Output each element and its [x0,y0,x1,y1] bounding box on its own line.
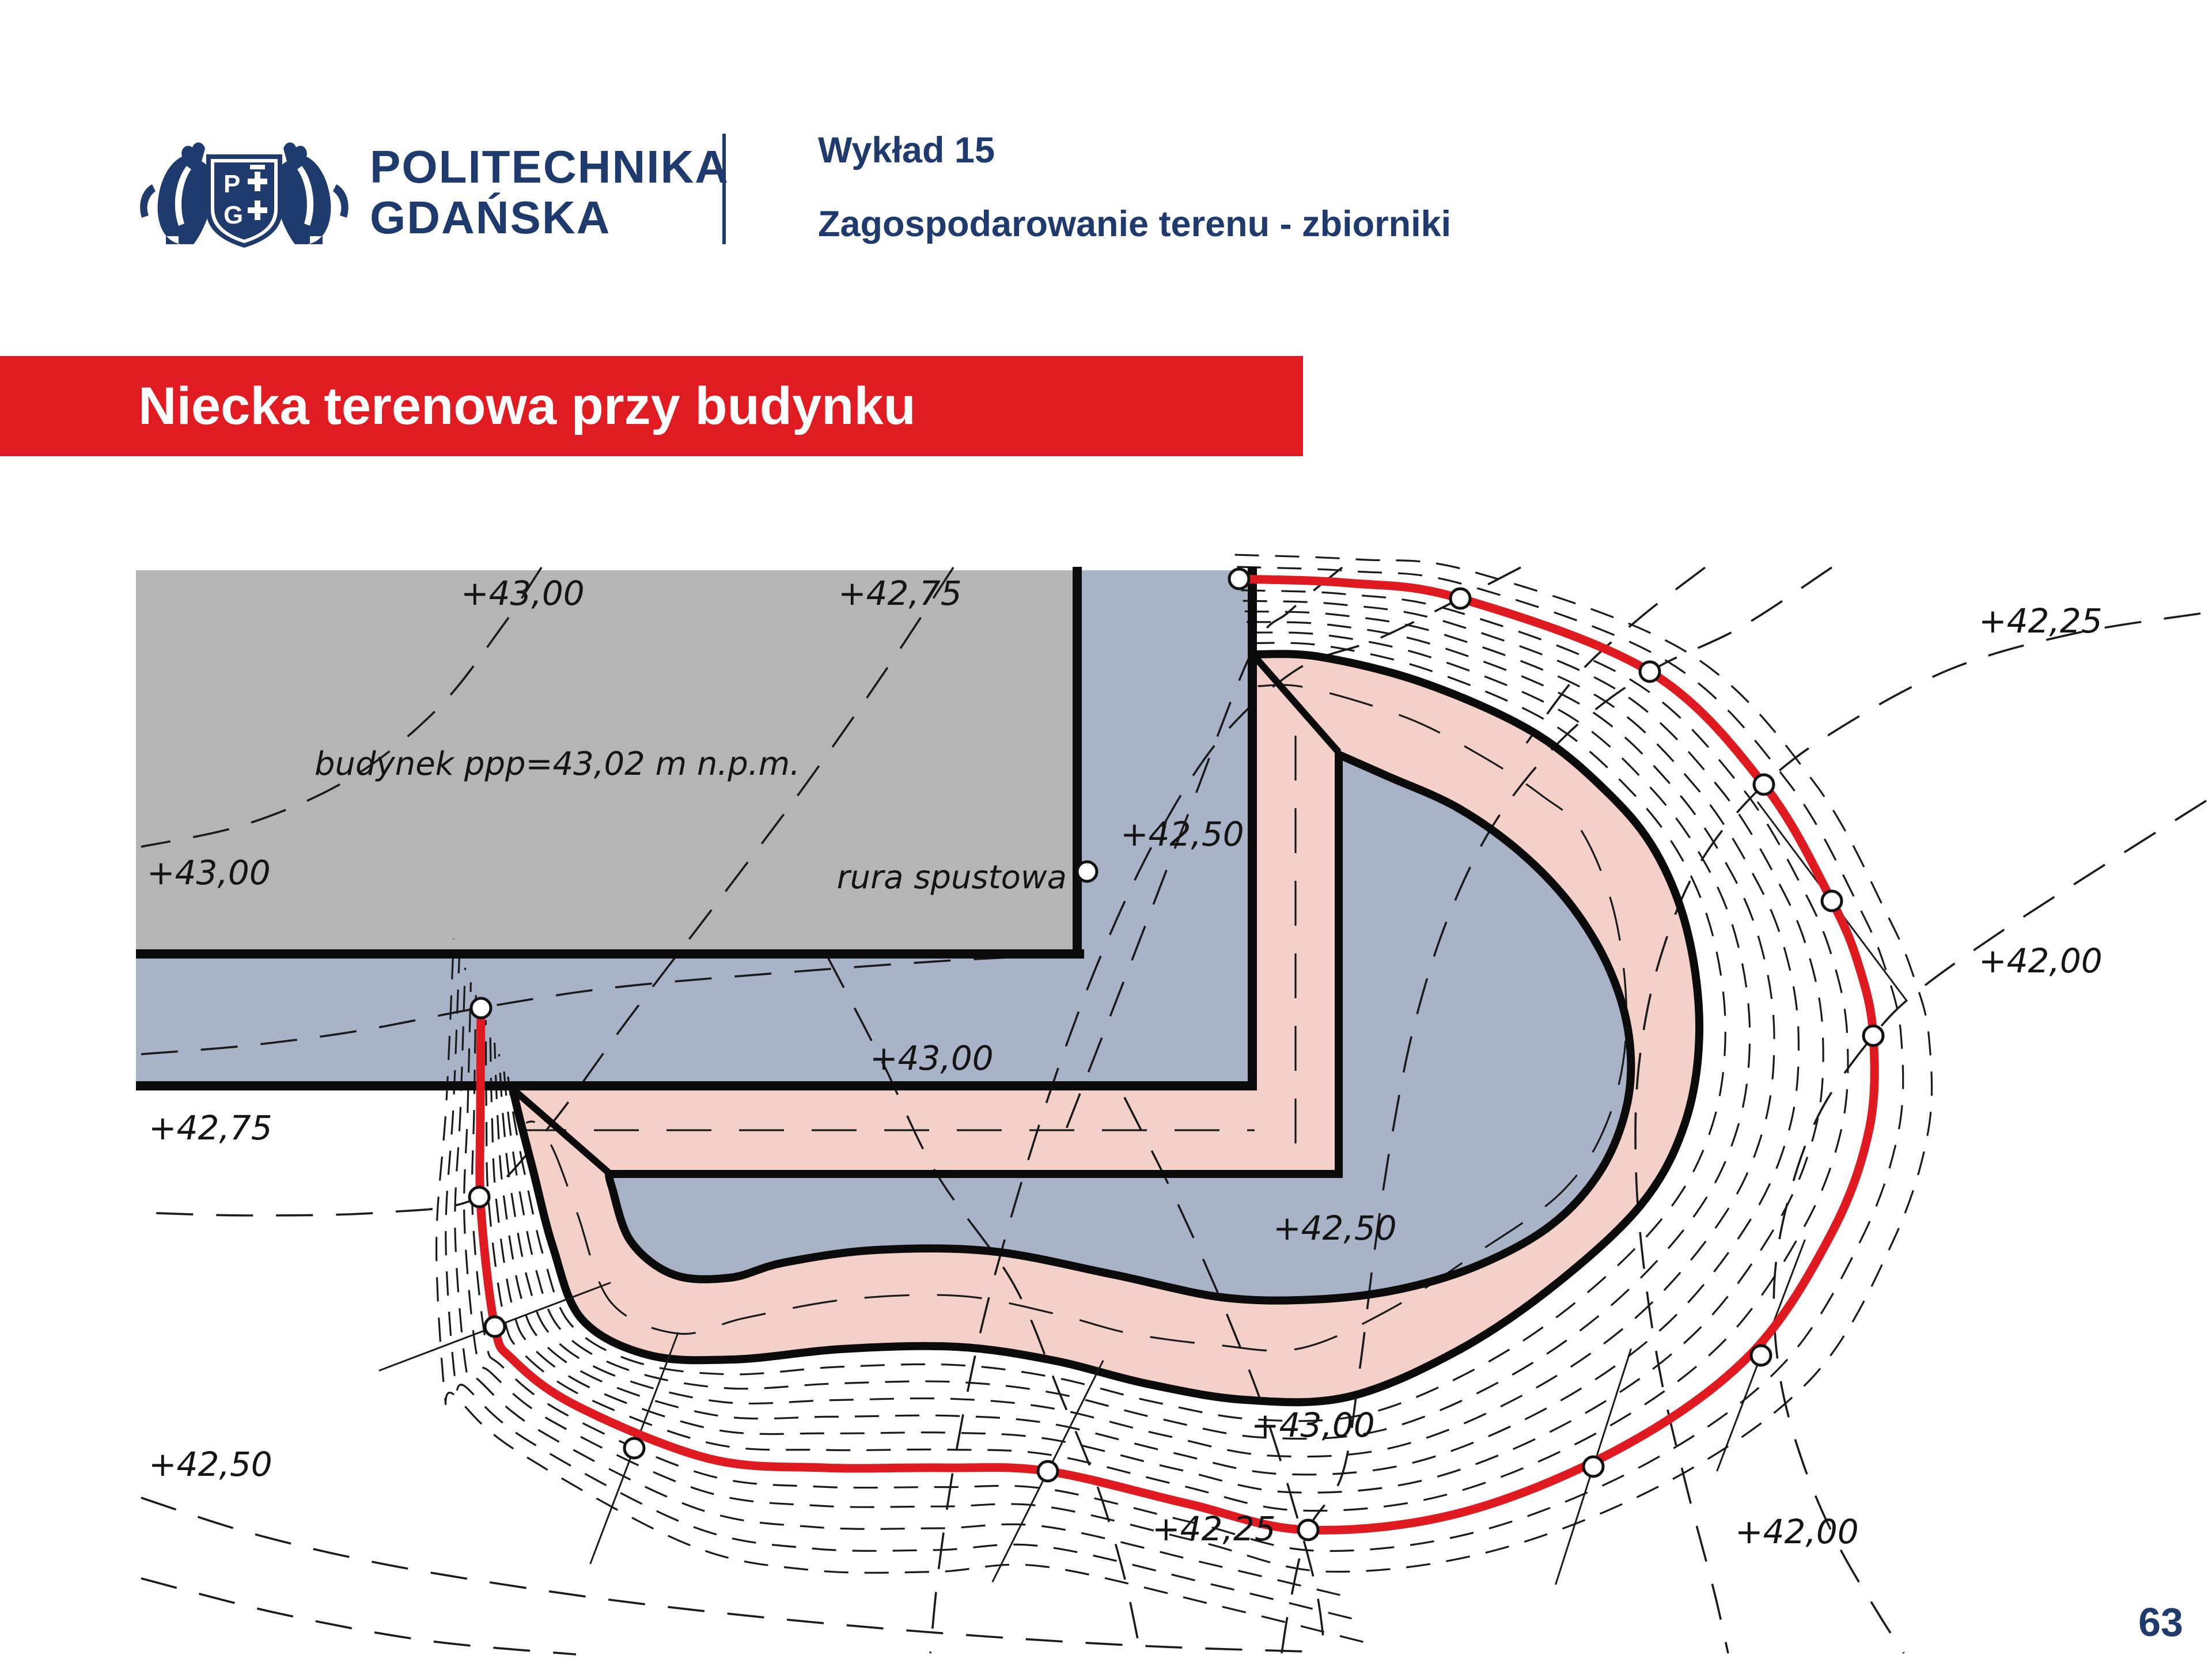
grading-limit-marker [485,1317,505,1336]
natural-contour [1635,613,2200,1653]
grading-limit-marker [1584,1457,1603,1476]
contour-label: +42,75 [838,574,962,613]
page-number: 63 [2085,1599,2183,1645]
grading-limit-marker [1822,891,1842,911]
natural-contour [141,1498,1325,1652]
contour-label: +42,00 [1735,1512,1859,1551]
contour-label: +43,00 [147,853,271,892]
contour-label: +43,00 [1251,1406,1375,1445]
grading-limit-marker [1640,662,1660,681]
contour-label: +42,50 [1120,815,1244,854]
lecture-slide: P G POLITECHNIKA GDAŃSKA Wykład 15 Zagos… [0,0,2212,1659]
contour-label: +43,00 [461,574,585,613]
downpipe-label: rura spustowa [837,859,1067,896]
natural-contour [141,1578,576,1654]
contour-label: +42,50 [149,1445,272,1484]
contour-label: +42,00 [1979,941,2103,980]
grading-limit-marker [1077,862,1097,881]
grading-limit-marker [1450,589,1470,608]
grading-limit-marker [1298,1520,1318,1540]
site-plan-diagram: +43,00+42,75+43,00+42,50+42,25+42,00+42,… [0,0,2212,1659]
grading-limit-marker [1229,569,1249,589]
grading-limit-marker [624,1438,644,1458]
contour-label: +42,75 [149,1108,272,1147]
contour-label: +43,00 [870,1039,994,1078]
contour-label: +42,25 [1979,601,2103,641]
grading-limit-marker [1754,775,1774,794]
grading-limit-marker [471,998,491,1018]
building-label: budynek ppp=43,02 m n.p.m. [315,745,800,783]
grading-limit-marker [469,1187,489,1207]
contour-label: +42,25 [1152,1509,1276,1548]
contour-label: +42,50 [1273,1209,1397,1248]
grading-limit-marker [1863,1026,1883,1046]
grading-limit-marker [1751,1346,1771,1365]
grading-limit-marker [1038,1461,1058,1481]
